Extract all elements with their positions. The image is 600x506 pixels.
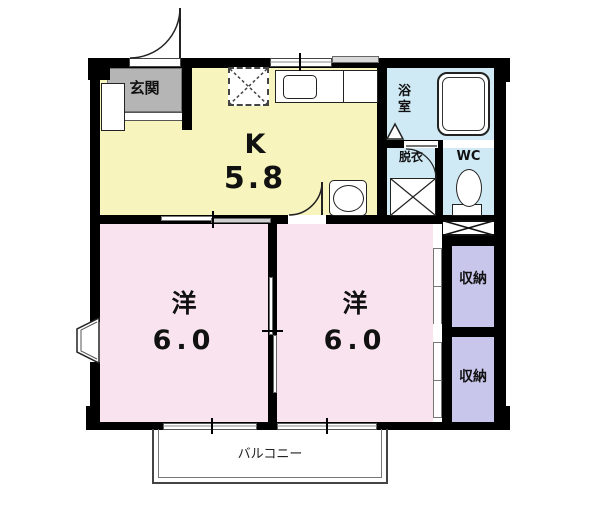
washing-machine-space: [390, 178, 436, 216]
western-room-left-floor: [100, 224, 268, 422]
closet-door-bottom-split: [433, 380, 442, 381]
counter-window: [332, 56, 379, 63]
corner-bottom-left: [86, 406, 100, 430]
kitchen-sink: [283, 75, 317, 99]
wall-between-storage: [442, 327, 494, 337]
room-divider-sliding-door-panel-a: [269, 277, 273, 335]
bathtub-inner: [442, 77, 485, 131]
western-room-right-floor: [277, 224, 433, 422]
storage-top-label: 収納: [450, 272, 496, 287]
toilet-bowl: [456, 169, 482, 207]
kitchen-label: K: [180, 130, 330, 160]
wall-entrance-right: [182, 68, 192, 130]
corner-top-right: [494, 58, 510, 82]
bathroom-label: 浴室: [396, 84, 413, 115]
room-divider-sliding-door-panel-b: [273, 335, 277, 393]
western-left-area: 6.0: [100, 326, 268, 356]
pipe-space-hatch: [443, 220, 494, 236]
wall-dressing-wc: [435, 140, 443, 215]
entrance-door-opening: [129, 58, 181, 67]
storage-bottom-label: 収納: [450, 370, 496, 385]
wc-label: WC: [443, 150, 494, 164]
entrance-door-swing: [130, 8, 180, 58]
washbasin-bowl: [333, 185, 364, 212]
wall-storage-left: [442, 215, 452, 422]
closet-door-top-split: [433, 286, 442, 287]
washbasin: [329, 180, 367, 216]
western-right-label: 洋: [277, 290, 433, 318]
balcony-label: バルコニー: [152, 448, 388, 462]
kitchen-area: 5.8: [180, 162, 330, 195]
wall-under-hatch: [443, 236, 494, 246]
western-right-area: 6.0: [277, 326, 433, 356]
kitchen-door-opening: [288, 215, 326, 224]
wall-left: [90, 58, 100, 430]
corner-bottom-right: [494, 406, 510, 430]
bathtub: [437, 72, 490, 136]
floorplan: 玄関 K 5.8 浴室 脱衣 WC 洋 6.0 洋 6.0 収納 収納 バルコニ…: [0, 0, 600, 506]
entrance-label: 玄関: [107, 80, 182, 97]
dressing-door-opening: [404, 141, 438, 148]
left-room-sliding-door-panel-a: [161, 216, 213, 221]
counter-divider: [343, 71, 344, 102]
dressing-label: 脱衣: [387, 151, 435, 164]
left-room-sliding-door-panel-b: [211, 218, 271, 223]
kitchen-window: [270, 58, 332, 67]
western-left-label: 洋: [100, 290, 268, 318]
refrigerator-space: [228, 67, 269, 106]
corner-top-left: [88, 58, 110, 80]
wall-kitchen-rooms: [100, 215, 443, 224]
